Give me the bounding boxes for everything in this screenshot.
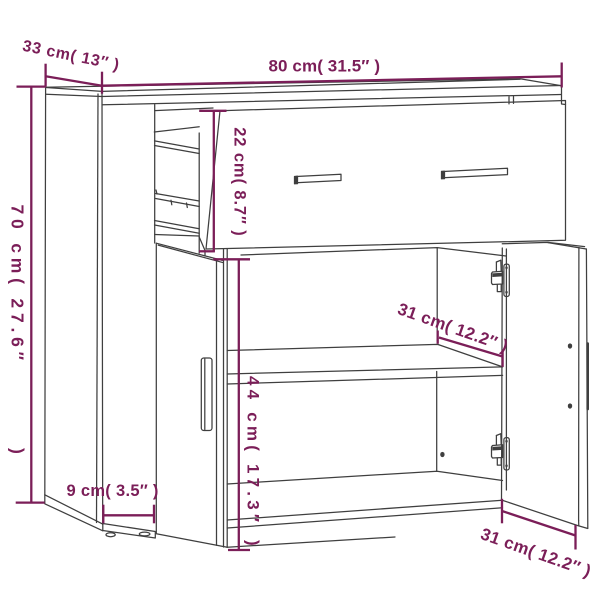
svg-text:9 cm( 3.5″ ): 9 cm( 3.5″ ) xyxy=(67,482,159,500)
svg-text:80 cm( 31.5″ ): 80 cm( 31.5″ ) xyxy=(269,57,381,76)
svg-text:22 cm( 8.7″ ): 22 cm( 8.7″ ) xyxy=(231,127,249,236)
svg-text:): ) xyxy=(7,448,27,454)
svg-text:70 cm( 27.6″: 70 cm( 27.6″ xyxy=(7,205,27,365)
svg-text:44 cm( 17.3″: 44 cm( 17.3″ xyxy=(244,376,263,526)
svg-text:): ) xyxy=(244,540,263,546)
